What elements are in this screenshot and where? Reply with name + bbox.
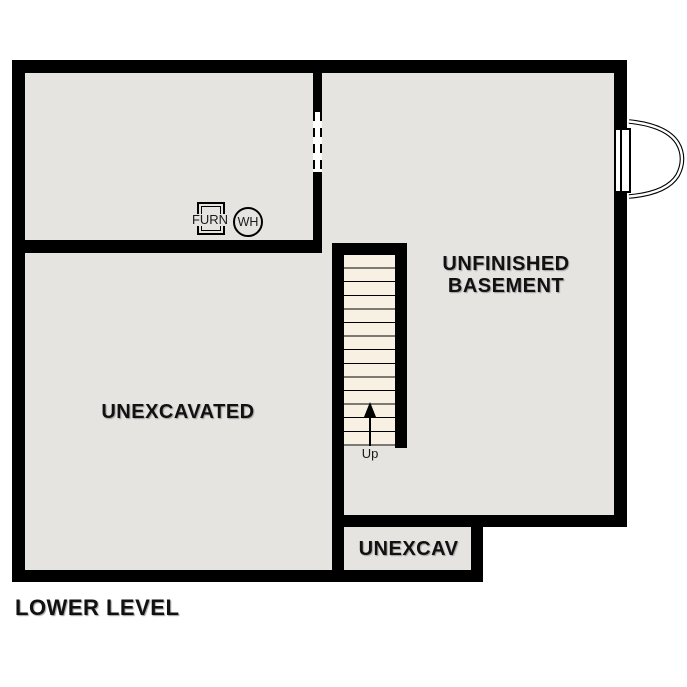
door-opening-dash-left (313, 112, 315, 172)
floor-plan: Up FURN WH UNFINISHED BASEMENT UNEXCAVAT… (0, 0, 687, 687)
stairs-up-label: Up (354, 446, 386, 461)
wall-bottom-outer (12, 570, 483, 582)
window-frame (614, 128, 631, 193)
wall-basement-bottom (332, 515, 627, 527)
unfinished-basement-label-line2: BASEMENT (406, 275, 606, 297)
up-arrow-icon (364, 402, 376, 417)
wall-left (12, 60, 25, 582)
wall-stair-left (332, 243, 344, 582)
wall-unexcav-right (471, 527, 483, 582)
wall-middle-horizontal (12, 240, 322, 253)
wall-right-lower (614, 193, 627, 527)
water-heater-icon: WH (233, 207, 263, 237)
door-opening (313, 112, 322, 172)
unfinished-basement-label-line1: UNFINISHED (406, 253, 606, 275)
up-arrow-shaft (369, 416, 371, 446)
unfinished-basement-label: UNFINISHED BASEMENT (406, 253, 606, 297)
wall-interior-lower (313, 172, 322, 253)
furnace-label: FURN (189, 214, 231, 226)
wall-right-upper (614, 60, 627, 128)
window-frame-divider (620, 130, 622, 191)
wall-interior-upper (313, 70, 322, 112)
unexcav-small-label: UNEXCAV (345, 538, 472, 560)
water-heater-label: WH (238, 215, 259, 229)
page-title: LOWER LEVEL (15, 595, 179, 621)
door-opening-dash-right (320, 112, 322, 172)
utility-room-floor (24, 73, 322, 253)
unexcavated-label: UNEXCAVATED (78, 401, 278, 423)
